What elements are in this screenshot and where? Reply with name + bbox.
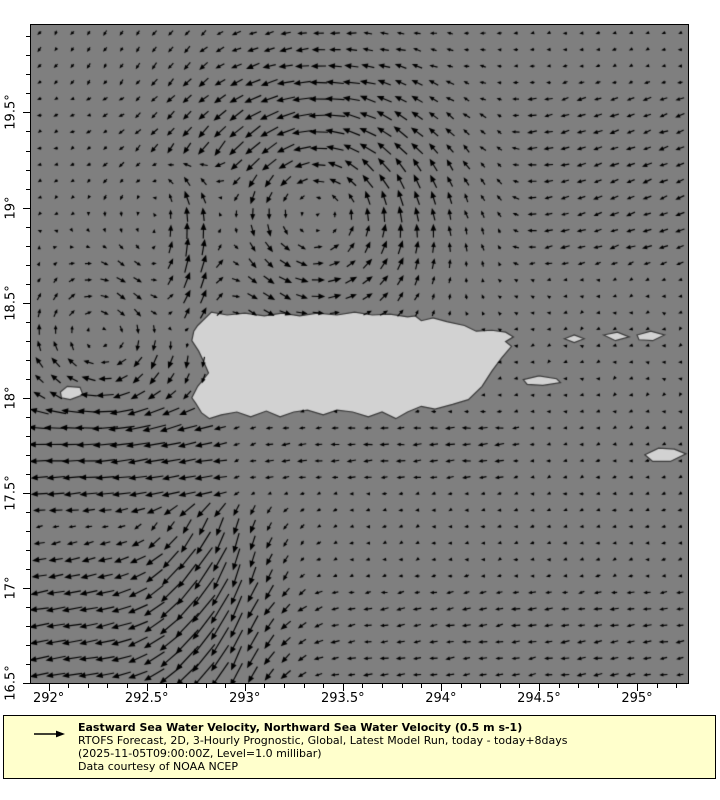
x-minor-tick	[559, 684, 560, 688]
y-major-tick	[23, 208, 30, 209]
y-minor-tick	[26, 284, 30, 285]
x-minor-tick	[657, 684, 658, 688]
x-major-tick	[343, 684, 344, 691]
x-minor-tick	[519, 684, 520, 688]
y-tick-label: 16.5°	[4, 665, 19, 700]
x-major-tick	[441, 684, 442, 691]
x-tick-label: 293°	[229, 691, 260, 706]
y-tick-label: 17°	[4, 576, 19, 599]
x-tick-label: 293.5°	[321, 691, 365, 706]
y-tick-label: 18.5°	[4, 285, 19, 320]
y-major-tick	[23, 112, 30, 113]
x-minor-tick	[166, 684, 167, 688]
y-tick-label: 17.5°	[4, 475, 19, 510]
y-major-tick	[23, 303, 30, 304]
x-major-tick	[147, 684, 148, 691]
y-minor-tick	[26, 417, 30, 418]
y-tick-label: 19.5°	[4, 95, 19, 130]
y-minor-tick	[26, 170, 30, 171]
x-minor-tick	[362, 684, 363, 688]
x-major-tick	[539, 684, 540, 691]
y-minor-tick	[26, 512, 30, 513]
x-minor-tick	[578, 684, 579, 688]
y-major-tick	[23, 588, 30, 589]
y-major-tick	[23, 683, 30, 684]
y-minor-tick	[26, 360, 30, 361]
y-tick-label: 18°	[4, 386, 19, 409]
x-minor-tick	[225, 684, 226, 688]
legend-text-block: Eastward Sea Water Velocity, Northward S…	[78, 721, 568, 773]
y-minor-tick	[26, 607, 30, 608]
x-tick-label: 292.5°	[125, 691, 169, 706]
y-minor-tick	[26, 265, 30, 266]
y-minor-tick	[26, 227, 30, 228]
x-major-tick	[245, 684, 246, 691]
y-minor-tick	[26, 474, 30, 475]
y-minor-tick	[26, 531, 30, 532]
y-minor-tick	[26, 569, 30, 570]
x-minor-tick	[304, 684, 305, 688]
y-tick-label: 19°	[4, 196, 19, 219]
x-minor-tick	[107, 684, 108, 688]
y-minor-tick	[26, 626, 30, 627]
legend-run-info: (2025-11-05T09:00:00Z, Level=1.0 milliba…	[78, 747, 568, 760]
x-tick-label: 295°	[621, 691, 652, 706]
y-major-tick	[23, 493, 30, 494]
x-minor-tick	[617, 684, 618, 688]
quiver-canvas	[30, 24, 689, 684]
x-major-tick	[49, 684, 50, 691]
x-minor-tick	[88, 684, 89, 688]
y-minor-tick	[26, 322, 30, 323]
y-minor-tick	[26, 36, 30, 37]
y-minor-tick	[26, 455, 30, 456]
y-minor-tick	[26, 645, 30, 646]
y-minor-tick	[26, 74, 30, 75]
y-minor-tick	[26, 189, 30, 190]
x-minor-tick	[598, 684, 599, 688]
y-minor-tick	[26, 151, 30, 152]
y-major-tick	[23, 398, 30, 399]
legend-title: Eastward Sea Water Velocity, Northward S…	[78, 721, 568, 734]
x-minor-tick	[676, 684, 677, 688]
reference-arrow-icon	[34, 729, 66, 739]
legend-box: Eastward Sea Water Velocity, Northward S…	[3, 715, 716, 779]
x-minor-tick	[500, 684, 501, 688]
x-tick-label: 294.5°	[517, 691, 561, 706]
x-minor-tick	[382, 684, 383, 688]
legend-credit: Data courtesy of NOAA NCEP	[78, 760, 568, 773]
x-minor-tick	[461, 684, 462, 688]
y-minor-tick	[26, 436, 30, 437]
y-minor-tick	[26, 664, 30, 665]
y-minor-tick	[26, 131, 30, 132]
figure: 292°292.5°293°293.5°294°294.5°295°19.5°1…	[0, 0, 720, 800]
y-minor-tick	[26, 379, 30, 380]
x-minor-tick	[323, 684, 324, 688]
y-minor-tick	[26, 550, 30, 551]
x-minor-tick	[68, 684, 69, 688]
y-minor-tick	[26, 341, 30, 342]
x-minor-tick	[402, 684, 403, 688]
x-minor-tick	[127, 684, 128, 688]
x-minor-tick	[480, 684, 481, 688]
x-minor-tick	[186, 684, 187, 688]
x-major-tick	[637, 684, 638, 691]
y-minor-tick	[26, 246, 30, 247]
x-tick-label: 294°	[425, 691, 456, 706]
x-minor-tick	[284, 684, 285, 688]
legend-subtitle: RTOFS Forecast, 2D, 3-Hourly Prognostic,…	[78, 734, 568, 747]
x-tick-label: 292°	[33, 691, 64, 706]
x-minor-tick	[206, 684, 207, 688]
x-minor-tick	[421, 684, 422, 688]
y-minor-tick	[26, 93, 30, 94]
x-minor-tick	[264, 684, 265, 688]
y-minor-tick	[26, 55, 30, 56]
